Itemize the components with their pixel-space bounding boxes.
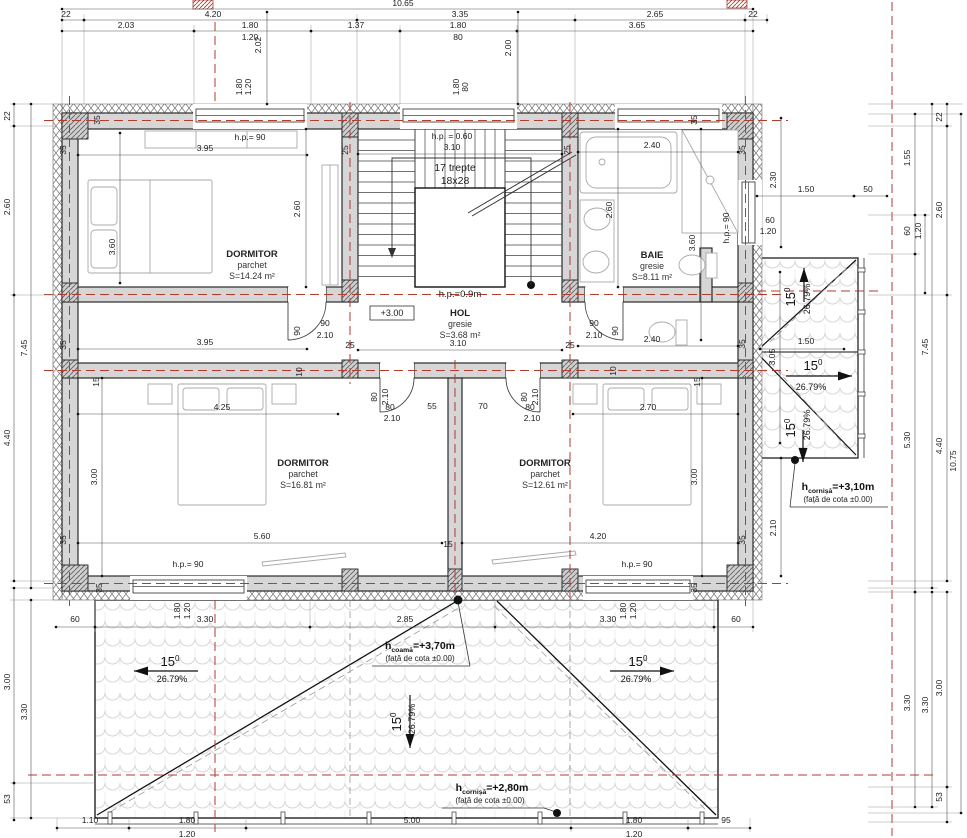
dim-label: 4.20 [205, 9, 222, 19]
dim-label: 2.10 [317, 330, 334, 340]
dimension-tick [886, 195, 889, 198]
dim-label: 53 [934, 792, 944, 802]
dim-label: 35 [689, 583, 699, 593]
dim-label: 3.30 [197, 614, 214, 624]
dim-label: 2.70 [640, 402, 657, 412]
room-floor: parchet [237, 260, 267, 270]
dimension-tick [946, 786, 949, 789]
dimension-tick [960, 812, 963, 815]
dimension-tick [713, 626, 716, 629]
dim-label: 2.10 [384, 413, 401, 423]
dim-label: 80 [369, 392, 379, 402]
dimension-tick [843, 348, 846, 351]
dim-label: 4.40 [934, 437, 944, 454]
dimension-tick [128, 827, 131, 830]
dim-label: 1.20 [913, 222, 923, 239]
dim-label: 4.20 [590, 531, 607, 541]
dim-label: 25 [345, 340, 355, 350]
dim-label: 10 [608, 366, 618, 376]
dim-label: 4.25 [214, 402, 231, 412]
dim-label: 1.55 [902, 149, 912, 166]
dimension-tick [441, 542, 444, 545]
dim-label: 70 [478, 401, 488, 411]
dim-label: 10.75 [948, 450, 958, 472]
stair-treads-left [358, 140, 415, 277]
dimension-tick [779, 271, 782, 274]
room-name: HOL [450, 308, 470, 319]
dim-label: 55 [427, 401, 437, 411]
dimension-tick [914, 253, 917, 256]
dimension-tick [494, 626, 497, 629]
stairs [358, 129, 576, 289]
dimension-tick [245, 827, 248, 830]
dimension-tick [617, 286, 620, 289]
cornice-height-label-right: hcornișă=+3,10m [802, 481, 875, 495]
dimension-tick [946, 125, 949, 128]
dim-label: 7.45 [19, 339, 29, 356]
dimension-tick [779, 442, 782, 445]
dim-label: 22 [2, 111, 12, 121]
dimension-tick [914, 591, 917, 594]
dimension-tick [853, 195, 856, 198]
dimension-tick [752, 626, 755, 629]
dim-label: 3.35 [452, 9, 469, 19]
dimension-tick [305, 128, 308, 131]
dim-label: 1.20 [626, 829, 643, 838]
dim-label: +3.00 [381, 308, 404, 318]
dimension-tick [780, 117, 783, 120]
dim-label: 80 [519, 392, 529, 402]
dim-label: 1.20 [628, 602, 638, 619]
window-bottom-left [130, 576, 247, 600]
window-bottom-right [583, 576, 693, 600]
shelf-bottom-right [492, 551, 576, 564]
dim-label: 1.20 [182, 602, 192, 619]
dimension-tick [101, 377, 104, 380]
dim-label: 2.40 [644, 334, 661, 344]
dim-label: 1.80 [242, 20, 259, 30]
dimension-tick [737, 542, 740, 545]
ridge-height-note: (față de cota ±0.00) [385, 654, 455, 663]
dim-label: 1.20 [760, 226, 777, 236]
dim-label: 2.03 [118, 20, 135, 30]
dimension-tick [94, 626, 97, 629]
dimension-tick [687, 827, 690, 830]
dimension-tick [737, 413, 740, 416]
dimension-tick [30, 599, 33, 602]
dimension-tick [306, 348, 309, 351]
dimension-tick [914, 806, 917, 809]
dim-label: 2.10 [524, 413, 541, 423]
dim-label: 10 [294, 367, 304, 377]
dimension-tick [931, 103, 934, 106]
dim-label: 1.80 [626, 815, 643, 825]
dim-label: 10.65 [392, 0, 414, 8]
dimension-tick [756, 195, 759, 198]
dimension-tick [305, 286, 308, 289]
dimension-tick [946, 294, 949, 297]
dim-label: 50 [863, 184, 873, 194]
dimension-tick [461, 542, 464, 545]
dimension-tick [13, 819, 16, 822]
dim-label: 1.10 [82, 815, 99, 825]
section-marks [193, 0, 747, 9]
dim-label: 3.95 [197, 143, 214, 153]
dim-label: 1.80 [450, 20, 467, 30]
dimension-tick [13, 125, 16, 128]
dim-label: 3.00 [2, 673, 12, 690]
window-top-stairs [400, 104, 517, 129]
dim-label: 1.20 [243, 78, 253, 95]
dimension-tick [737, 151, 740, 154]
dim-label: 35 [92, 115, 102, 125]
dimension-tick [337, 413, 340, 416]
dim-label: 35 [737, 145, 747, 155]
dimension-tick [960, 113, 963, 116]
room-floor: parchet [530, 469, 560, 479]
dimension-tick [13, 294, 16, 297]
dimension-tick [744, 19, 747, 22]
dim-label: 5.30 [902, 431, 912, 448]
dim-label: 1.50 [798, 336, 815, 346]
dimension-tick [13, 580, 16, 583]
slope-percent: 26.79% [407, 704, 417, 735]
dim-label: 15 [443, 539, 453, 549]
dim-label: 2.30 [768, 171, 778, 188]
dimension-tick [946, 103, 949, 106]
slope-percent: 26.79% [802, 410, 812, 441]
dimension-tick [77, 413, 80, 416]
dim-label: 2.85 [397, 614, 414, 624]
dim-label: 90 [589, 318, 599, 328]
dim-label: h.p. = 0.60 [432, 131, 473, 141]
dimension-tick [30, 817, 33, 820]
room-area: S=16.81 m² [280, 480, 326, 490]
dimension-tick [931, 587, 934, 590]
dim-label: 17 trepte [434, 162, 476, 174]
dim-label: 3.30 [19, 703, 29, 720]
dimension-tick [13, 782, 16, 785]
dim-label: 35 [689, 115, 699, 125]
dim-label: 3.00 [89, 468, 99, 485]
room-name: DORMITOR [519, 458, 571, 469]
dim-label: 22 [934, 112, 944, 122]
dimension-tick [700, 339, 703, 342]
dimension-tick [914, 113, 917, 116]
dimension-tick [766, 19, 769, 22]
dimension-tick [30, 103, 33, 106]
dim-label: 60 [70, 614, 80, 624]
dimension-tick [61, 30, 64, 33]
dimension-tick [946, 821, 949, 824]
dimension-tick [572, 413, 575, 416]
dimension-tick [399, 30, 402, 33]
dimension-tick [77, 542, 80, 545]
dim-label: 1.20 [179, 829, 196, 838]
furniture [88, 130, 738, 566]
dimension-tick [517, 11, 520, 14]
dimension-tick [310, 30, 313, 33]
dim-label: 35 [94, 583, 104, 593]
dim-label: 15 [692, 377, 702, 387]
dim-label: 53 [2, 794, 12, 804]
dimension-tick [61, 19, 64, 22]
dim-label: 90 [320, 318, 330, 328]
dimension-tick [701, 377, 704, 380]
dim-label: 3.10 [450, 338, 467, 348]
dim-label: 18x28 [441, 175, 470, 187]
dim-label: 2.02 [253, 36, 263, 53]
dimension-tick [780, 246, 783, 249]
room-name: DORMITOR [277, 458, 329, 469]
dimension-tick [119, 282, 122, 285]
dim-label: 3.60 [687, 234, 697, 251]
dim-label: 2.65 [647, 9, 664, 19]
dim-label: 4.40 [2, 429, 12, 446]
dim-label: 2.60 [2, 198, 12, 215]
window-right-bath [738, 180, 762, 245]
dimension-tick [737, 345, 740, 348]
dimension-tick [266, 11, 269, 14]
shelf-bottom-left [262, 553, 346, 566]
dim-label: 80 [385, 402, 395, 412]
dim-label: 35 [737, 339, 747, 349]
dim-label: 5.00 [404, 815, 421, 825]
dim-label: 80 [460, 82, 470, 92]
dim-label: 2.10 [768, 519, 778, 536]
window-top-left [193, 104, 307, 129]
dim-label: 1.37 [348, 20, 365, 30]
dimension-tick [561, 349, 564, 352]
dim-label: 3.00 [934, 679, 944, 696]
dim-label: 22 [748, 9, 758, 19]
dim-label: 25 [562, 145, 572, 155]
dim-label: 3.30 [600, 614, 617, 624]
dimension-tick [517, 103, 520, 106]
dim-label: 2.10 [586, 330, 603, 340]
dim-label: h.p.= 90 [721, 212, 731, 243]
dimension-tick [780, 457, 783, 460]
dimension-tick [55, 626, 58, 629]
cornice-height-note-right: (față de cota ±0.00) [803, 495, 873, 504]
dimension-tick [700, 128, 703, 131]
dimension-tick [752, 30, 755, 33]
dim-label: 3.60 [107, 238, 117, 255]
bed-top-left [88, 180, 212, 273]
dimension-tick [914, 214, 917, 217]
dim-label: 2.00 [503, 39, 513, 56]
dimension-tick [193, 30, 196, 33]
dimension-tick [577, 151, 580, 154]
slope-percent: 26.79% [802, 284, 812, 315]
bathtub [580, 132, 677, 193]
dim-label: 3.10 [444, 142, 461, 152]
room-name: DORMITOR [226, 249, 278, 260]
dim-label: h.p.= 90 [235, 132, 266, 142]
dim-label: 15 [91, 377, 101, 387]
closet-top-left [145, 131, 297, 148]
dimension-tick [357, 153, 360, 156]
slope-percent: 26.79% [621, 674, 652, 684]
dim-label: 25 [565, 340, 575, 350]
dimension-tick [77, 154, 80, 157]
dimension-tick [13, 587, 16, 590]
room-floor: gresie [640, 261, 664, 271]
dim-label: 3.30 [902, 694, 912, 711]
dim-label: 3.00 [689, 468, 699, 485]
dimension-tick [101, 575, 104, 578]
toilet-1 [679, 253, 717, 278]
dim-label: 3.30 [920, 696, 930, 713]
dimension-tick [83, 19, 86, 22]
dimension-tick [924, 214, 927, 217]
room-floor: gresie [448, 319, 472, 329]
dimension-tick [56, 827, 59, 830]
room-area: S=8.11 m² [632, 272, 672, 282]
dim-label: 1.50 [798, 184, 815, 194]
dimension-tick [931, 591, 934, 594]
dimension-tick [577, 345, 580, 348]
dimension-tick [946, 580, 949, 583]
dim-label: 80 [525, 402, 535, 412]
dim-label: 35 [58, 145, 68, 155]
dimension-tick [30, 587, 33, 590]
dim-label: 60 [731, 614, 741, 624]
dim-label: 1.80 [172, 602, 182, 619]
window-top-bath [615, 104, 722, 129]
dim-label: h.p.= 90 [622, 559, 653, 569]
room-area: S=12.61 m² [522, 480, 568, 490]
dimension-tick [119, 132, 122, 135]
dimension-tick [759, 348, 762, 351]
slope-percent: 26.79% [157, 674, 188, 684]
dimension-tick [931, 806, 934, 809]
dimension-tick [13, 103, 16, 106]
room-area: S=14.24 m² [229, 271, 275, 281]
dim-label: 3.95 [197, 337, 214, 347]
dimension-tick [946, 591, 949, 594]
dim-label: 1.80 [618, 602, 628, 619]
dimension-tick [701, 575, 704, 578]
dim-label: 3.05 [767, 348, 777, 365]
room-name: BAIE [641, 250, 664, 261]
dimension-tick [357, 349, 360, 352]
dimension-tick [749, 827, 752, 830]
dim-label: 60 [902, 226, 912, 236]
dim-label: 7.45 [920, 338, 930, 355]
floor-plan-svg: DORMITOR parchet S=14.24 m² DORMITOR par… [0, 0, 967, 838]
dim-label: 25 [340, 145, 350, 155]
cornice-height-note-bottom: (față de cota ±0.00) [455, 796, 525, 805]
dim-label: 2.40 [644, 140, 661, 150]
dimension-tick [266, 103, 269, 106]
dim-label: 5.60 [254, 531, 271, 541]
dim-label: 2.60 [292, 200, 302, 217]
dimension-tick [570, 827, 573, 830]
dim-label: 2.60 [934, 201, 944, 218]
dim-label: 35 [58, 535, 68, 545]
dim-label: 3.65 [629, 20, 646, 30]
dimension-tick [77, 348, 80, 351]
dim-label: 95 [721, 815, 731, 825]
slope-percent: 26.79% [796, 382, 827, 392]
dimension-tick [309, 626, 312, 629]
dimension-tick [561, 153, 564, 156]
dim-label: h.p.= 90 [173, 559, 204, 569]
dim-label: h.p.=0.9m [439, 289, 482, 300]
dim-label: 90 [610, 326, 620, 336]
dimension-tick [780, 575, 783, 578]
dim-label: 60 [765, 215, 775, 225]
dim-label: 1.80 [179, 815, 196, 825]
dimension-tick [924, 292, 927, 295]
dimension-tick [574, 19, 577, 22]
dim-label: 35 [58, 340, 68, 350]
dim-label: 80 [453, 32, 463, 42]
dim-label: 2.60 [604, 201, 614, 218]
stair-treads-right [505, 140, 562, 277]
room-floor: parchet [288, 469, 318, 479]
dimension-tick [617, 128, 620, 131]
dim-label: 22 [61, 9, 71, 19]
dim-label: 90 [292, 326, 302, 336]
floor-plan-page: DORMITOR parchet S=14.24 m² DORMITOR par… [0, 0, 967, 838]
